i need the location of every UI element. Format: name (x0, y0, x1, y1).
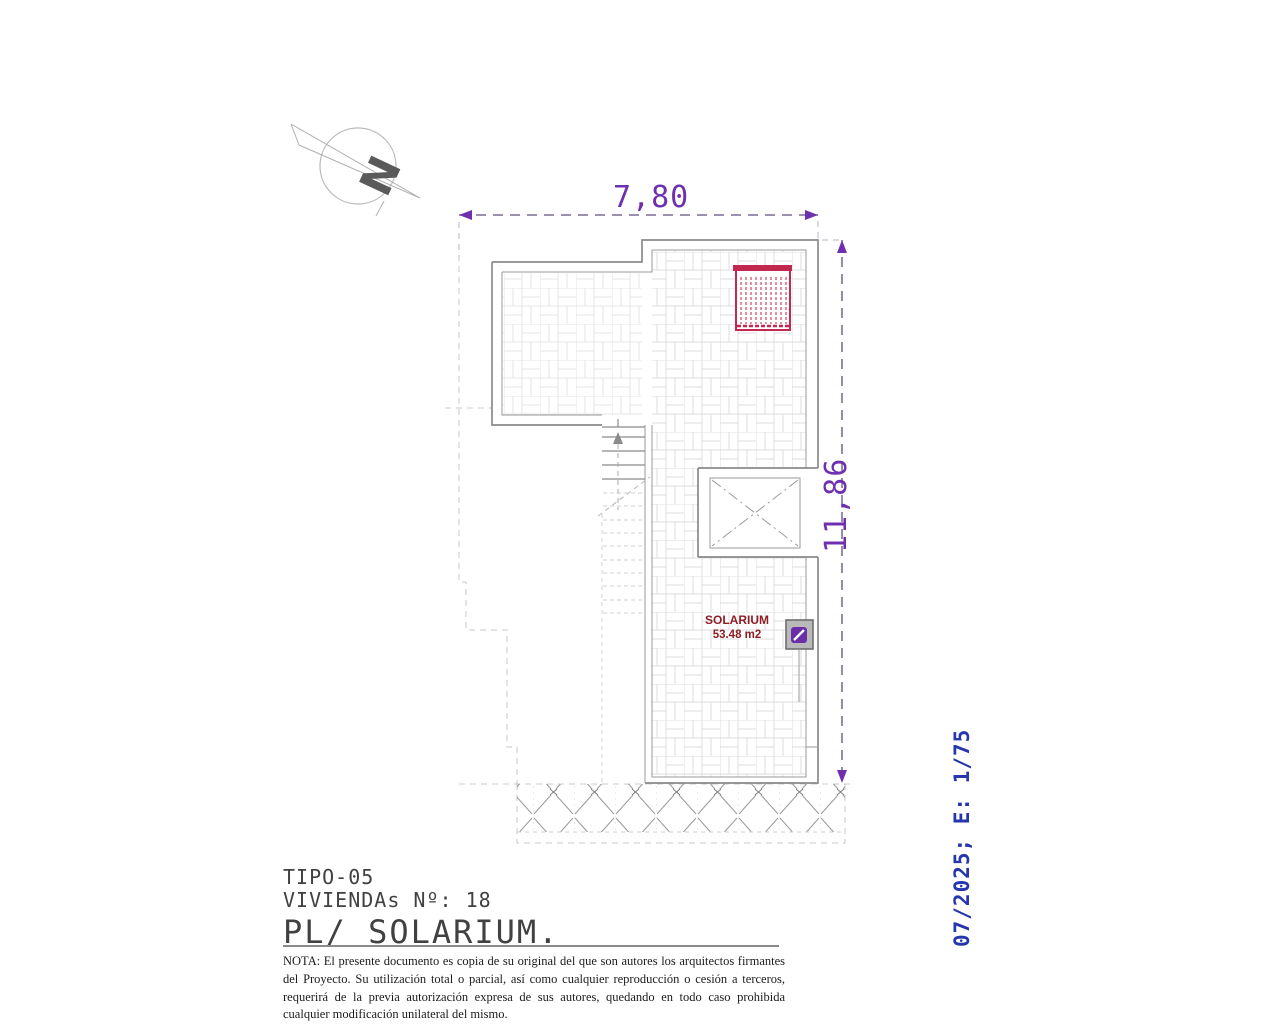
dimension-width-label: 7,80 (613, 180, 689, 215)
title-block: TIPO-05 VIVIENDAs Nº: 18 PL/ SOLARIUM. (283, 866, 559, 950)
floor-plan-drawing: N (0, 0, 1280, 1024)
fence-band (517, 784, 845, 832)
legal-note: NOTA: El presente documento es copia de … (283, 953, 785, 1024)
north-arrow: N (291, 124, 420, 216)
plan-type: TIPO-05 (283, 866, 559, 888)
title-divider (283, 945, 779, 947)
floor-plan-sheet: N (0, 0, 1280, 1024)
dimension-height: 11,86 (819, 240, 854, 783)
dimension-width: 7,80 (459, 180, 818, 258)
dimension-height-label: 11,86 (819, 458, 854, 553)
void-shaft (698, 468, 818, 557)
date-scale-stamp: 07/2025; E: 1/75 (950, 729, 974, 947)
room-area: 53.48 m2 (713, 629, 762, 641)
pergola (733, 265, 792, 330)
stair-direction-arrow (613, 432, 623, 444)
north-letter: N (347, 147, 409, 202)
stairs (598, 419, 650, 783)
room-name: SOLARIUM (705, 613, 769, 627)
plan-dwellings: VIVIENDAs Nº: 18 (283, 888, 559, 912)
